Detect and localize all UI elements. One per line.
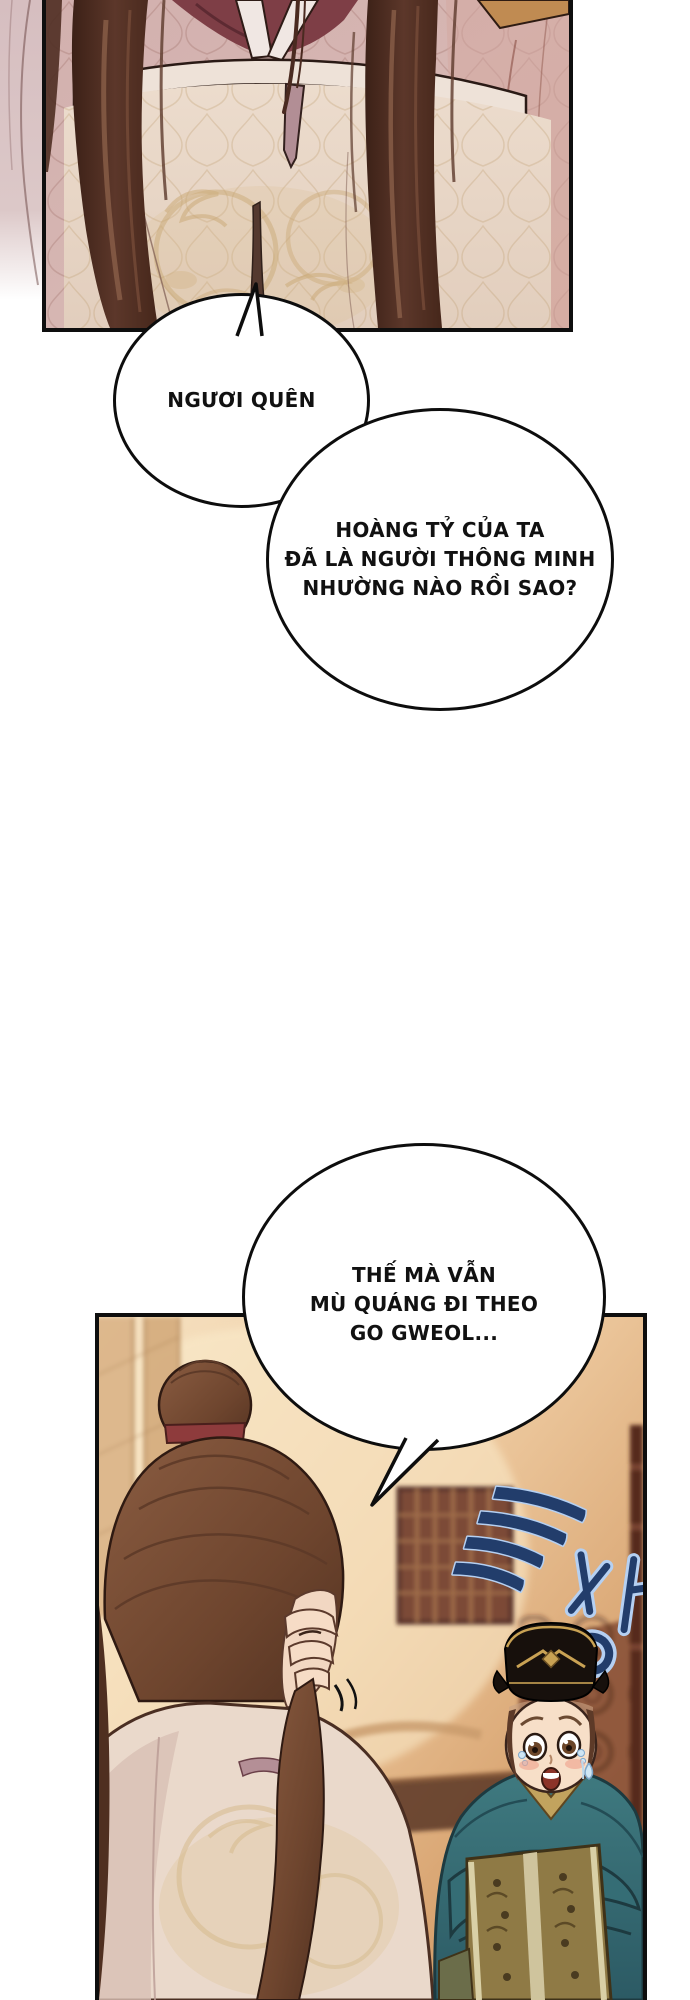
bubble-3-line-1: THẾ MÀ VẪN — [310, 1261, 538, 1290]
bleed-art — [0, 0, 42, 300]
bubble-3-line-2: MÙ QUÁNG ĐI THEO — [310, 1290, 538, 1319]
panel-top-bleed-sleeve — [0, 0, 42, 300]
blush-left — [519, 1760, 539, 1770]
comic-page: NGƯƠI QUÊN HOÀNG TỶ CỦA TA ĐÃ LÀ NGƯỜI T… — [0, 0, 690, 2000]
bubble-2-line-2: ĐÃ LÀ NGƯỜI THÔNG MINH — [284, 545, 595, 574]
brocade-band — [467, 1845, 611, 2000]
bubble-2-line-1: HOÀNG TỶ CỦA TA — [284, 516, 595, 545]
bubble-1-text: NGƯƠI QUÊN — [167, 386, 315, 415]
bubble-3-line-3: GO GWEOL... — [310, 1319, 538, 1348]
bubble-2-line-3: NHƯỜNG NÀO RỒI SAO? — [284, 574, 595, 603]
bubble-1-tail — [225, 278, 275, 340]
speech-bubble-2: HOÀNG TỶ CỦA TA ĐÃ LÀ NGƯỜI THÔNG MINH N… — [266, 408, 614, 711]
speech-bubble-3: THẾ MÀ VẪN MÙ QUÁNG ĐI THEO GO GWEOL... — [242, 1143, 606, 1451]
bubble-3-tail — [360, 1430, 450, 1515]
panel-top — [42, 0, 573, 332]
panel-top-art — [46, 0, 569, 328]
